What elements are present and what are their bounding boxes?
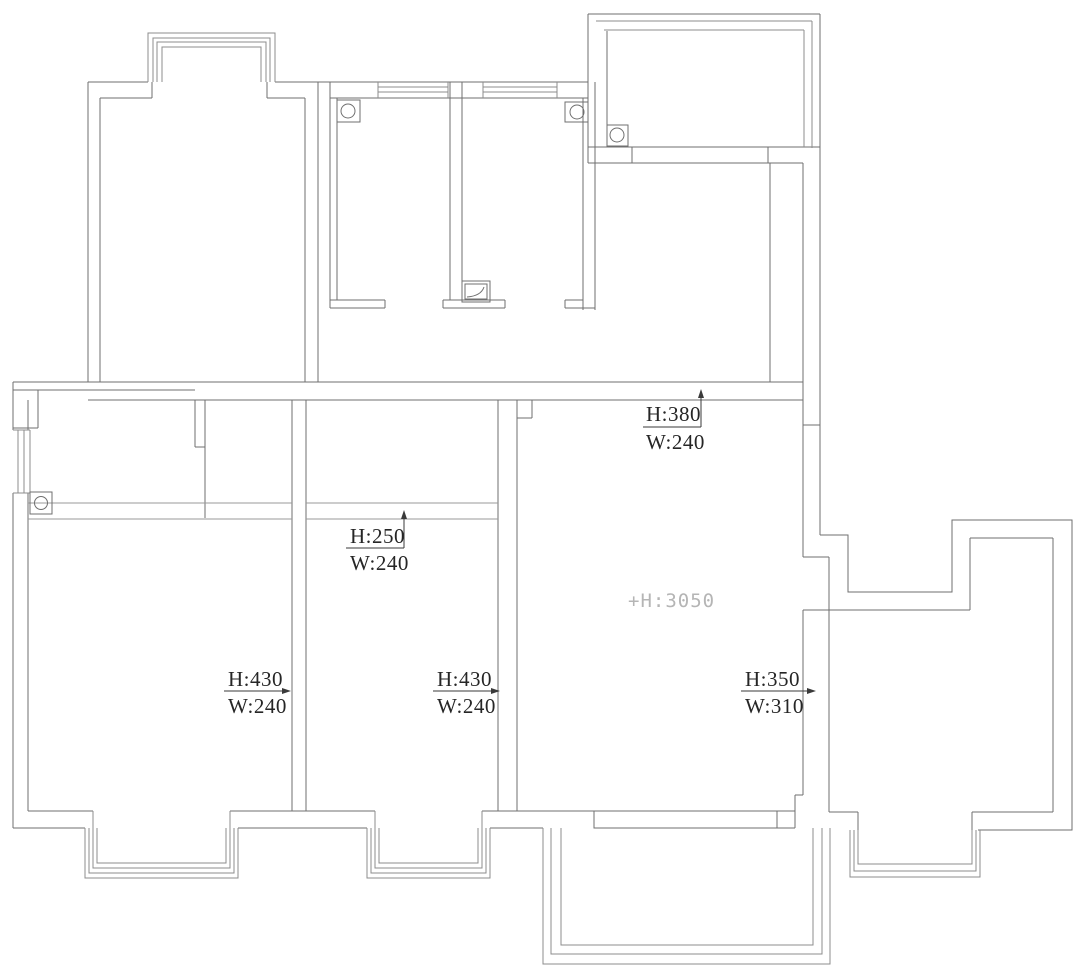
dim-height-label: H:430 [437, 667, 492, 691]
wall-lines [13, 14, 1072, 830]
dim-height-label: H:380 [646, 402, 701, 426]
ceiling-beam-lines [28, 503, 498, 519]
dim-height-label: H:430 [228, 667, 283, 691]
washer-icon [565, 102, 588, 122]
annotation-beam-380: H:380 W:240 [643, 389, 705, 454]
shower-base-icon [462, 281, 490, 302]
annotation-wall-430-center: H:430 W:240 [433, 667, 500, 718]
annotation-wall-430-left: H:430 W:240 [224, 667, 291, 718]
dim-width-label: W:240 [350, 551, 409, 575]
arrow-right-icon [807, 688, 816, 694]
ceiling-height-label: +H:3050 [628, 590, 715, 612]
washer-icon [337, 100, 360, 122]
floor-plan-canvas: H:380 W:240 H:250 W:240 H:430 W:240 H:43… [0, 0, 1080, 980]
annotation-beam-250: H:250 W:240 [346, 510, 409, 575]
washer-icon [607, 125, 628, 146]
floor-plan-drawing: H:380 W:240 H:250 W:240 H:430 W:240 H:43… [0, 0, 1080, 980]
dim-width-label: W:240 [437, 694, 496, 718]
fixture-symbols [30, 100, 628, 514]
dim-width-label: W:240 [646, 430, 705, 454]
arrow-up-icon [401, 510, 407, 519]
annotation-wall-350-right: H:350 W:310 [741, 667, 816, 718]
dim-width-label: W:240 [228, 694, 287, 718]
dim-width-label: W:310 [745, 694, 804, 718]
arrow-up-icon [698, 389, 704, 398]
window-lines [13, 21, 980, 964]
dim-height-label: H:350 [745, 667, 800, 691]
dim-height-label: H:250 [350, 524, 405, 548]
